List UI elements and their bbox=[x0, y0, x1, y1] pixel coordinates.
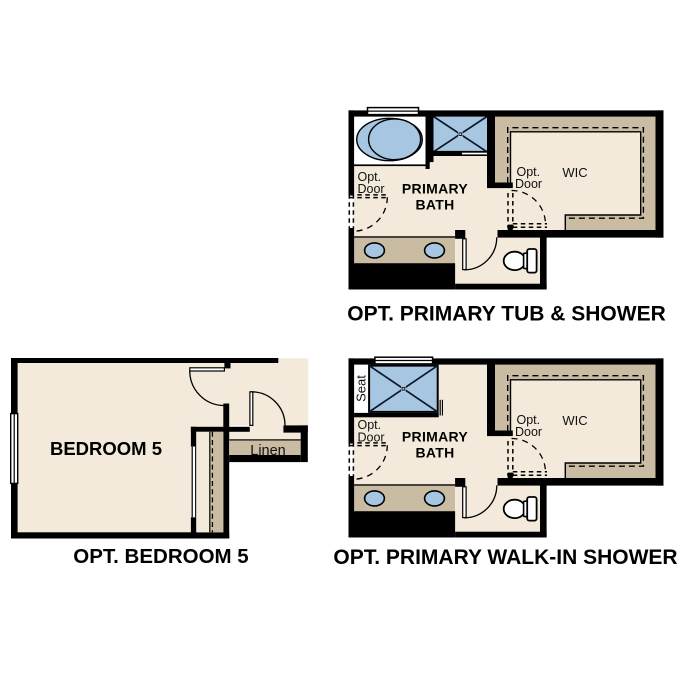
svg-text:Linen: Linen bbox=[250, 443, 285, 459]
svg-text:Seat: Seat bbox=[354, 375, 369, 402]
svg-text:BATH: BATH bbox=[415, 445, 454, 461]
svg-text:OPT. PRIMARY TUB & SHOWER: OPT. PRIMARY TUB & SHOWER bbox=[347, 302, 666, 325]
svg-text:Door: Door bbox=[515, 177, 542, 191]
svg-text:OPT. BEDROOM 5: OPT. BEDROOM 5 bbox=[73, 545, 248, 568]
svg-text:PRIMARY: PRIMARY bbox=[402, 429, 469, 445]
svg-text:BATH: BATH bbox=[415, 197, 454, 213]
svg-text:BEDROOM 5: BEDROOM 5 bbox=[50, 438, 162, 459]
svg-text:Door: Door bbox=[358, 431, 385, 445]
svg-text:OPT. PRIMARY WALK-IN SHOWER: OPT. PRIMARY WALK-IN SHOWER bbox=[333, 546, 677, 569]
svg-text:WIC: WIC bbox=[562, 413, 587, 428]
svg-text:Door: Door bbox=[358, 182, 385, 196]
svg-text:Door: Door bbox=[515, 425, 542, 439]
svg-text:PRIMARY: PRIMARY bbox=[402, 181, 469, 197]
svg-text:WIC: WIC bbox=[562, 165, 587, 180]
